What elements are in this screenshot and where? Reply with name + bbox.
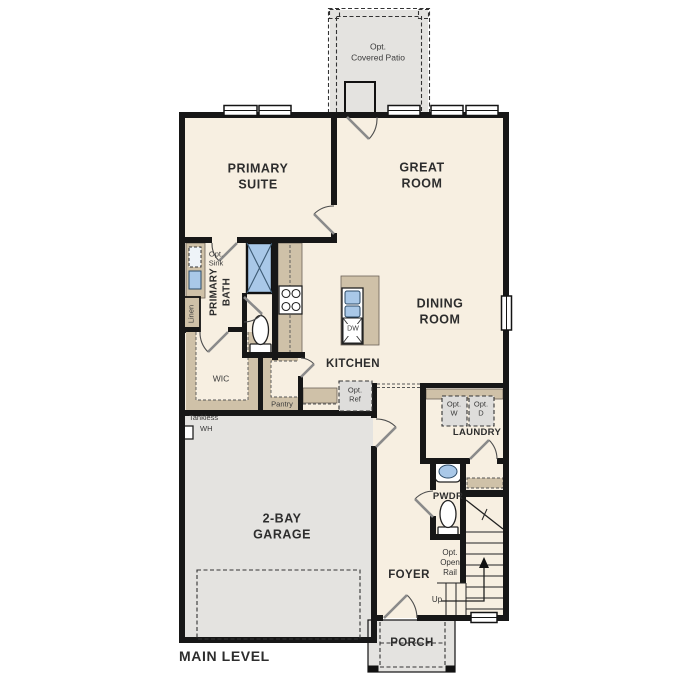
- label-laundry: LAUNDRY: [453, 427, 501, 439]
- label-pantry: Pantry: [271, 399, 293, 408]
- label-great-room: GREAT ROOM: [399, 160, 444, 191]
- porch-post: [369, 666, 379, 673]
- water-heater: [184, 426, 193, 439]
- porch-post: [446, 666, 456, 673]
- label-opt-open-rail: Opt. Open Rail: [440, 548, 460, 578]
- window: [466, 106, 498, 116]
- label-wic: WIC: [213, 374, 230, 385]
- label-wh: WH: [200, 424, 213, 433]
- window: [388, 106, 420, 116]
- label-porch: PORCH: [390, 636, 434, 650]
- pantry-floor: [271, 361, 298, 397]
- optional-sink: [189, 247, 201, 267]
- floor-plan: Opt. Covered Patio PRIMARY SUITE GREAT R…: [0, 0, 687, 687]
- cooktop: [279, 286, 302, 314]
- floor-plan-drawing: [0, 0, 687, 687]
- kitchen-counter-south: [303, 388, 337, 403]
- window: [224, 106, 257, 116]
- shower: [247, 243, 272, 293]
- label-kitchen: KITCHEN: [326, 357, 380, 371]
- stair-shelf: [467, 478, 503, 488]
- patio-step: [345, 82, 375, 113]
- label-pwdr: PWDR: [433, 491, 463, 503]
- label-main-level: MAIN LEVEL: [179, 648, 270, 666]
- window: [431, 106, 463, 116]
- label-foyer: FOYER: [388, 568, 430, 582]
- label-primary-suite: PRIMARY SUITE: [228, 161, 289, 192]
- bath-sink: [189, 271, 201, 289]
- window: [502, 296, 512, 330]
- window: [259, 106, 291, 116]
- wic-floor: [196, 332, 248, 400]
- label-covered-patio: Opt. Covered Patio: [351, 41, 405, 62]
- label-tankless: Tankless: [189, 413, 218, 422]
- label-primary-bath: PRIMARY BATH: [209, 268, 234, 316]
- island-sink-dishwasher: [342, 288, 363, 344]
- label-linen: Linen: [186, 305, 195, 323]
- powder-toilet: [438, 501, 458, 537]
- label-opt-ref: Opt. Ref: [348, 386, 362, 405]
- label-opt-sink: Opt. Sink: [209, 250, 224, 269]
- label-garage: 2-BAY GARAGE: [253, 511, 311, 542]
- window: [471, 613, 497, 623]
- label-up: Up: [432, 595, 442, 605]
- label-opt-dryer: Opt. D: [474, 400, 488, 419]
- label-dining-room: DINING ROOM: [417, 296, 464, 327]
- label-dishwasher: DW: [347, 326, 359, 335]
- powder-sink: [435, 461, 461, 482]
- label-opt-washer: Opt. W: [447, 400, 461, 419]
